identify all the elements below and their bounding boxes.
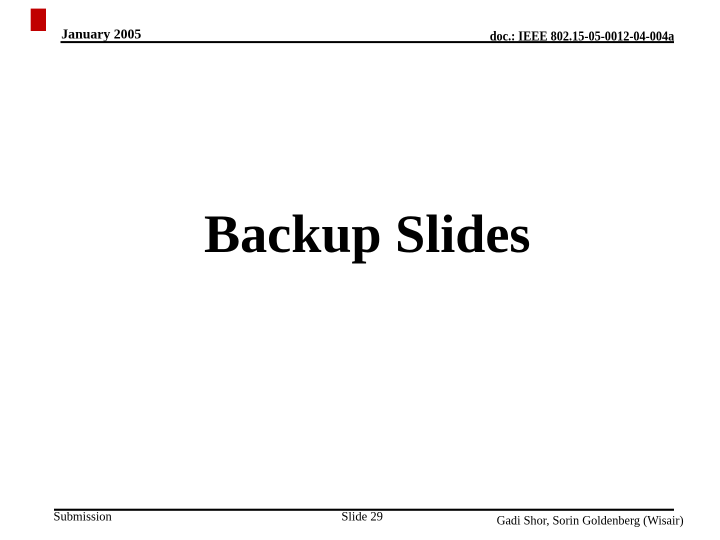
svg-text:doc.: IEEE 802.15-05-0012-04-0: doc.: IEEE 802.15-05-0012-04-004a: [490, 28, 675, 43]
svg-text:Gadi Shor, Sorin Goldenberg (W: Gadi Shor, Sorin Goldenberg (Wisair): [497, 514, 684, 528]
svg-text:Submission: Submission: [54, 509, 112, 523]
svg-text:Slide 29: Slide 29: [341, 510, 383, 524]
svg-text:Backup Slides: Backup Slides: [204, 204, 531, 264]
svg-text:January 2005: January 2005: [61, 26, 141, 41]
